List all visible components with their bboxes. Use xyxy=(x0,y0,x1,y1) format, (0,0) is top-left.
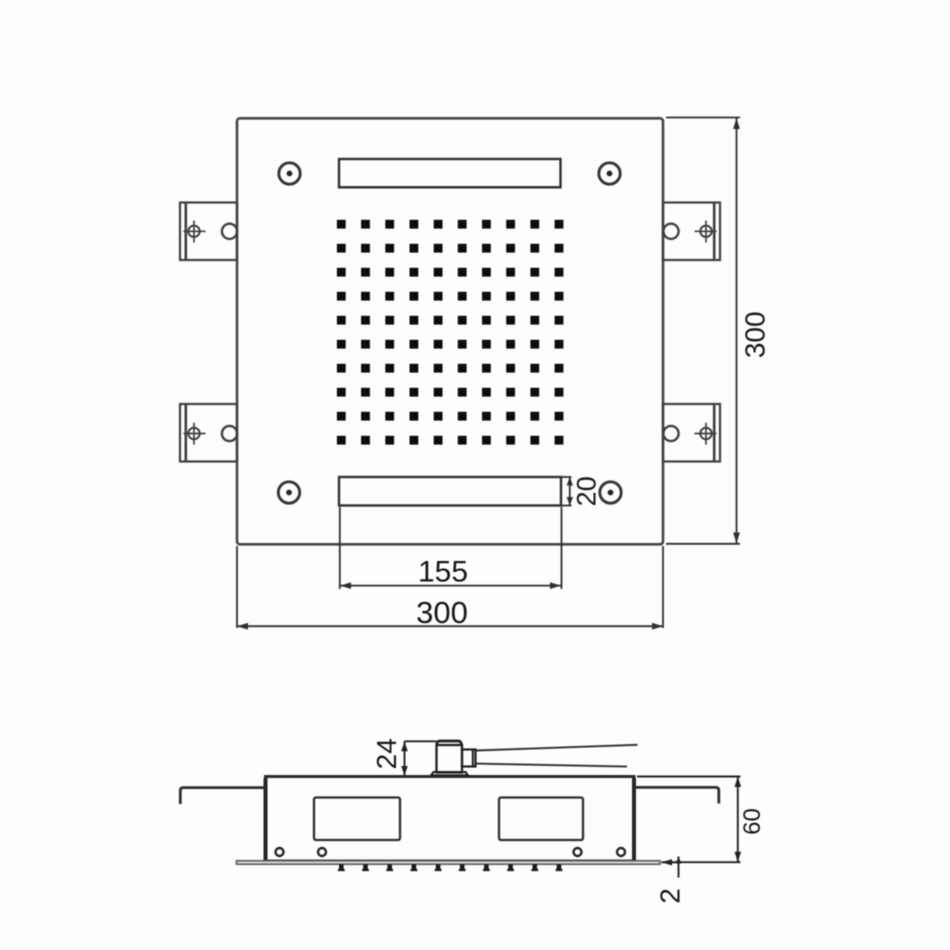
svg-text:300: 300 xyxy=(416,595,468,630)
svg-text:2: 2 xyxy=(655,888,686,904)
svg-text:20: 20 xyxy=(572,476,602,506)
svg-text:155: 155 xyxy=(418,556,468,589)
svg-text:300: 300 xyxy=(740,311,771,358)
svg-text:60: 60 xyxy=(739,808,766,835)
svg-text:24: 24 xyxy=(371,738,402,769)
